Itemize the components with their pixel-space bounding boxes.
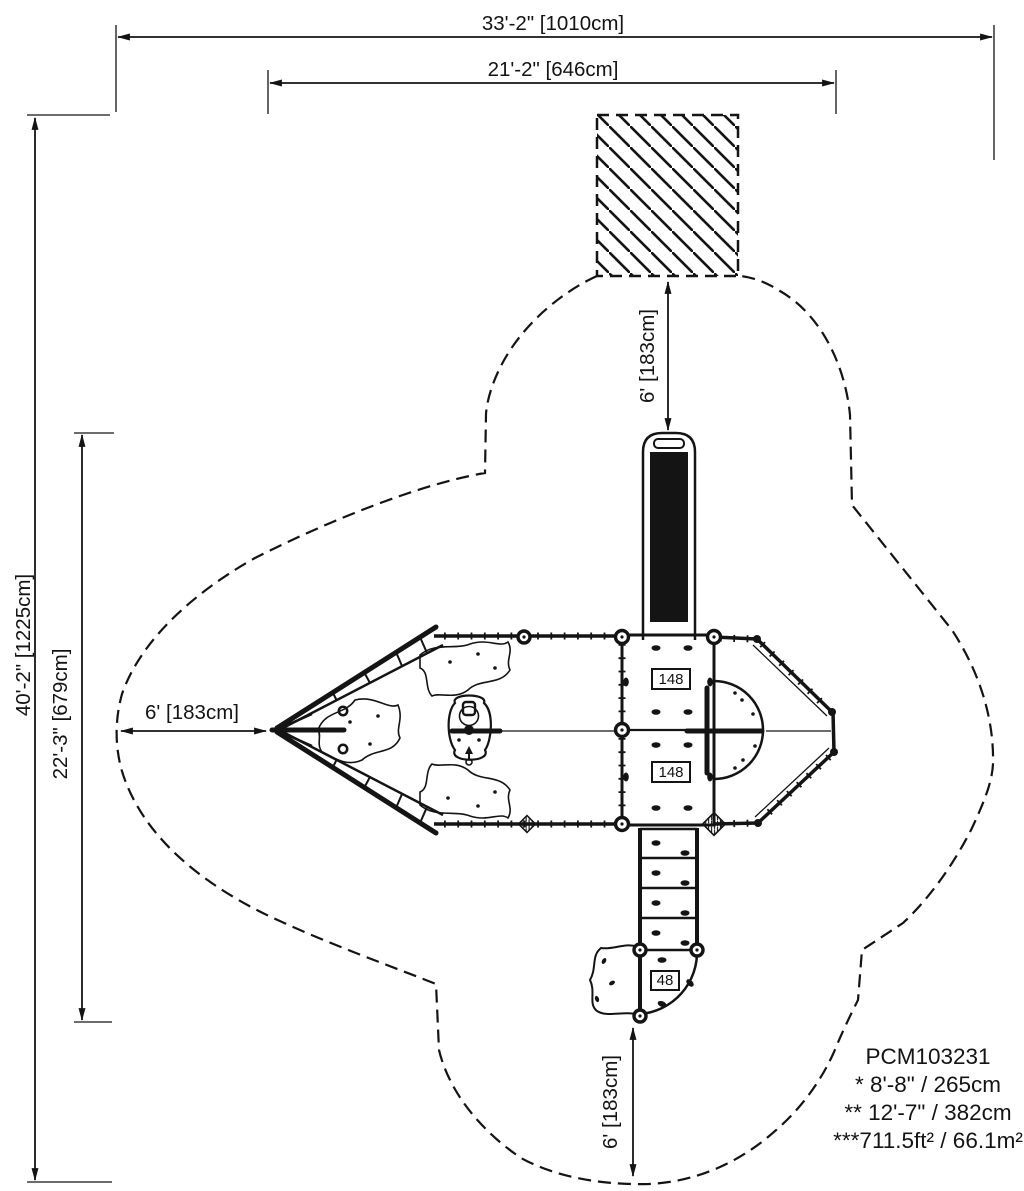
fence-bars (434, 631, 621, 824)
dimension-overall-width: 33'-2" [1010cm] (116, 12, 994, 160)
dimension-structure-width: 21'-2" [646cm] (268, 58, 836, 114)
exit-zone-bottom-label: 6' [183cm] (599, 1055, 622, 1149)
panel-hatch-marker (519, 816, 536, 833)
note-area: ***711.5ft² / 66.1m² (833, 1128, 1023, 1153)
slide-chute (650, 452, 688, 622)
dimension-structure-depth: 22'-3" [679cm] (49, 433, 114, 1022)
structure-width-label: 21'-2" [646cm] (488, 58, 619, 81)
playground-plan-svg: 33'-2" [1010cm] 21'-2" [646cm] 40'-2" [1… (0, 0, 1024, 1191)
upper-deck-label-box: 148 (652, 669, 690, 689)
bottom-quarter-deck: 48 (590, 944, 703, 1022)
dimension-exit-zone-left: 6' [183cm] (121, 701, 266, 731)
upper-deck-label: 148 (658, 671, 683, 688)
note-critical-height: * 8'-8" / 265cm (855, 1072, 1001, 1097)
transfer-hatch-marker (703, 813, 726, 836)
bottom-deck-label-box: 48 (651, 971, 679, 990)
lower-deck-label-box: 148 (652, 762, 690, 782)
right-bay (687, 635, 838, 827)
rock-panel (590, 945, 639, 1015)
stair-tread-dots (652, 840, 690, 946)
overall-width-label: 33'-2" [1010cm] (482, 12, 624, 35)
slide-tower (643, 433, 695, 640)
lower-deck-label: 148 (658, 764, 683, 781)
slide-entry-bar (654, 439, 684, 448)
model-number: PCM103231 (865, 1044, 990, 1069)
plan-drawing-page: 33'-2" [1010cm] 21'-2" [646cm] 40'-2" [1… (0, 0, 1024, 1191)
bottom-deck-label: 48 (657, 972, 674, 989)
dimension-exit-zone-bottom: 6' [183cm] (599, 1028, 633, 1176)
steering-wheel-panel (687, 688, 762, 773)
overall-depth-label: 40'-2" [1225cm] (12, 574, 35, 716)
slide-exit-hatch-area (597, 115, 738, 276)
dimension-exit-zone-top: 6' [183cm] (636, 282, 668, 430)
use-zone-boundary (117, 276, 993, 1184)
structure-depth-label: 22'-3" [679cm] (49, 649, 72, 780)
play-structure: 148 148 (272, 433, 838, 1022)
info-block: PCM103231 * 8'-8" / 265cm ** 12'-7" / 38… (833, 1044, 1023, 1153)
note-overall-height: ** 12'-7" / 382cm (844, 1100, 1011, 1125)
stairs (640, 828, 697, 949)
exit-zone-top-label: 6' [183cm] (636, 309, 659, 403)
exit-zone-left-label: 6' [183cm] (145, 701, 239, 724)
spring-spinner (449, 696, 621, 766)
